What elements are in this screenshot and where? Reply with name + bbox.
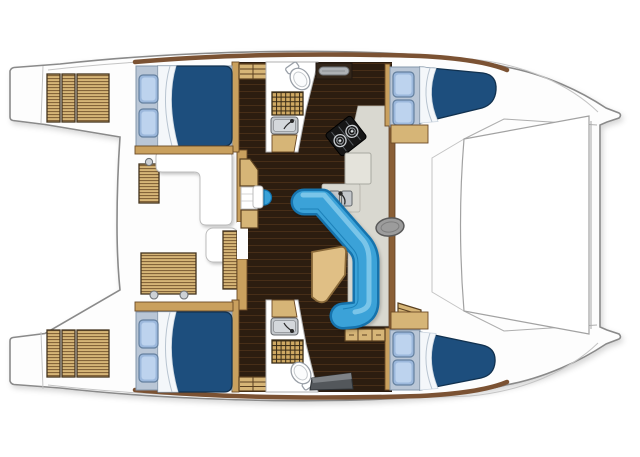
head-sink-icon: [271, 318, 298, 335]
galley-counter-unit: [345, 153, 371, 184]
swim-step: [77, 330, 109, 377]
berth-shelf: [391, 312, 428, 329]
pillow-inner: [142, 357, 156, 380]
shower-grate-icon: [272, 92, 303, 115]
berth-shelf: [391, 125, 428, 143]
starboard-companionway-steps: [239, 377, 267, 391]
pillow-inner: [142, 78, 156, 101]
cockpit-side-hatch: [139, 164, 159, 203]
vanity-cabinet: [272, 300, 297, 317]
swim-step: [62, 330, 75, 377]
swim-step: [77, 74, 109, 122]
hatch-handle-icon: [150, 291, 158, 299]
entry-post: [253, 186, 263, 208]
vanity-cabinet: [272, 135, 297, 152]
drawer-unit: [345, 329, 385, 341]
wall-port-forward-divider: [385, 64, 390, 126]
pillow-inner: [396, 75, 412, 95]
berth-port-aft: [135, 66, 233, 154]
swim-step: [62, 74, 75, 122]
port-galley-shelf: [316, 63, 352, 79]
pillow-inner: [142, 323, 156, 346]
wall-port-cabin-divider: [232, 62, 239, 152]
berth-starboard-aft: [135, 302, 233, 392]
trampoline: [461, 116, 590, 334]
cockpit-deck-hatch: [141, 253, 196, 294]
floorplan-svg: [0, 0, 640, 457]
head-sink-icon: [271, 117, 298, 134]
hatch-handle-icon: [145, 158, 152, 165]
wall-starboard-forward-divider: [385, 328, 390, 390]
swim-step: [47, 74, 60, 122]
transom-steps-port: [47, 74, 109, 122]
port-companionway-steps: [239, 64, 267, 79]
pillow-inner: [396, 103, 412, 123]
berth-shelf: [135, 146, 233, 154]
wall-starboard-cabin-divider: [232, 300, 239, 392]
floor-plan: [0, 0, 640, 457]
swim-step: [47, 330, 60, 377]
pillow-inner: [396, 335, 412, 355]
cockpit-locker-hatch: [223, 231, 237, 289]
berth-shelf: [135, 302, 233, 311]
shower-grate-icon: [272, 340, 303, 363]
pillow-inner: [396, 363, 412, 383]
hatch-handle-icon: [180, 291, 188, 299]
transom-steps-starboard: [47, 330, 109, 377]
pillow-inner: [142, 112, 156, 135]
cabin-sole: [238, 62, 392, 392]
